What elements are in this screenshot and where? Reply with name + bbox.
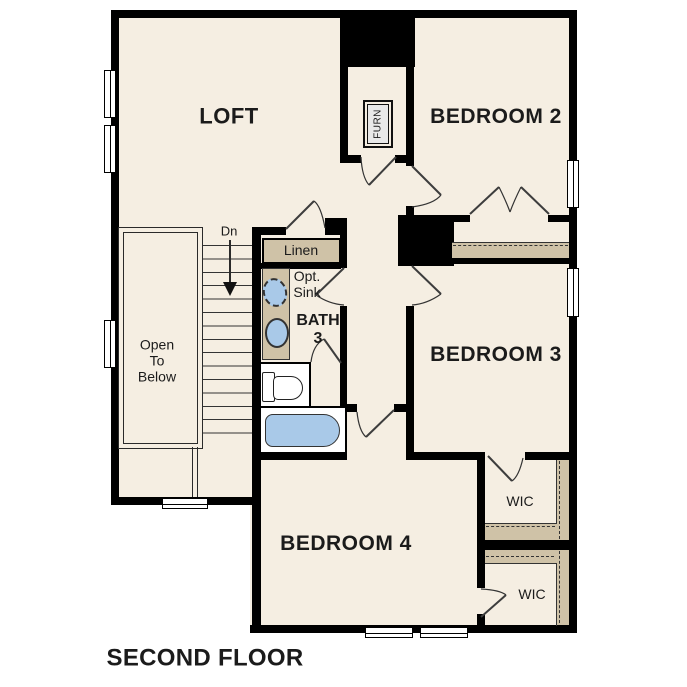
wic-shelf-edge — [485, 460, 557, 524]
wall — [454, 215, 470, 222]
stair-landing-line — [192, 447, 193, 497]
wall — [477, 614, 485, 625]
label-wic-upper: WIC — [506, 494, 533, 510]
wall — [261, 227, 286, 235]
label-stairs-down: Dn — [221, 225, 238, 240]
window — [567, 268, 579, 317]
furnace-chase — [340, 10, 415, 67]
stairs-down-arrow — [229, 240, 231, 284]
wall — [340, 62, 348, 163]
wall — [452, 257, 569, 264]
room-label-bedroom4: BEDROOM 4 — [280, 532, 412, 556]
window — [162, 498, 208, 509]
closet-rod — [453, 245, 568, 246]
toilet-bowl-icon — [273, 376, 303, 400]
window — [365, 627, 413, 638]
room-label-bedroom2: BEDROOM 2 — [430, 105, 562, 129]
wic-rod — [486, 526, 555, 527]
window — [567, 160, 579, 208]
wall — [406, 206, 414, 215]
wall — [395, 155, 414, 163]
wall — [340, 155, 361, 163]
wall — [477, 540, 577, 550]
label-optional-sink: Opt. Sink — [293, 269, 320, 301]
wic-rod — [486, 556, 554, 557]
wall — [406, 62, 414, 166]
wall — [477, 550, 485, 588]
wall — [250, 625, 577, 633]
floor-plan: LOFT BEDROOM 2 BEDROOM 3 BEDROOM 4 BATH … — [0, 0, 687, 687]
wall — [406, 452, 485, 460]
wall — [406, 306, 414, 460]
wall — [477, 452, 485, 540]
stair-landing-line — [197, 447, 198, 497]
wall — [398, 215, 454, 266]
room-label-bedroom3: BEDROOM 3 — [430, 343, 562, 367]
label-wic-lower: WIC — [518, 587, 545, 603]
window — [104, 320, 116, 368]
wic-shelf — [556, 460, 569, 540]
label-open-to-below: Open To Below — [138, 337, 176, 384]
wall — [325, 218, 347, 235]
window — [104, 125, 116, 173]
wall — [525, 452, 577, 460]
wall — [394, 404, 406, 412]
stairs-down-arrowhead — [223, 282, 237, 296]
label-linen: Linen — [284, 243, 318, 259]
wic-rod — [559, 551, 560, 623]
sink-icon — [265, 318, 289, 348]
bathtub-icon — [265, 414, 340, 447]
stairs — [203, 245, 252, 446]
page-title: SECOND FLOOR — [107, 644, 304, 671]
room-label-bath3: BATH 3 — [296, 312, 339, 348]
wic-shelf — [556, 550, 569, 625]
wall — [548, 215, 569, 222]
room-label-loft: LOFT — [199, 105, 258, 130]
label-furnace: FURN — [372, 109, 383, 139]
window — [104, 70, 116, 118]
window — [420, 627, 468, 638]
wic-rod — [559, 461, 560, 539]
